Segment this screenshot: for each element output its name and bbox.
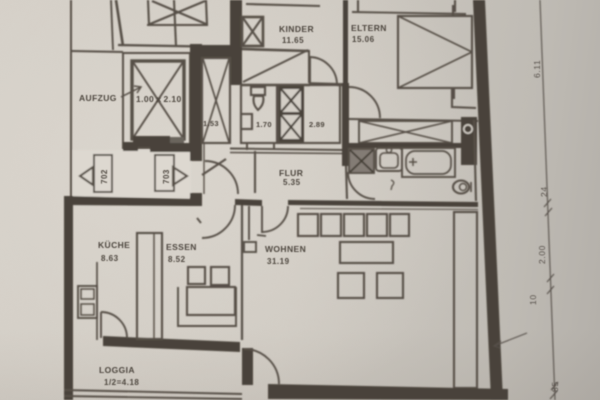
svg-text:2.89: 2.89	[309, 120, 325, 129]
svg-text:WOHNEN: WOHNEN	[265, 244, 306, 254]
svg-text:ESSEN: ESSEN	[166, 242, 197, 252]
svg-text:8.52: 8.52	[168, 255, 186, 264]
svg-text:ELTERN: ELTERN	[351, 23, 387, 33]
svg-text:703: 703	[162, 169, 171, 184]
svg-text:5.35: 5.35	[283, 178, 301, 187]
svg-text:702: 702	[100, 169, 109, 184]
svg-text:2.00: 2.00	[537, 245, 547, 264]
svg-text:FLUR: FLUR	[279, 168, 303, 178]
svg-text:24: 24	[539, 186, 549, 197]
svg-text:11.65: 11.65	[282, 36, 304, 45]
svg-text:15.06: 15.06	[352, 35, 375, 44]
svg-text:8.63: 8.63	[101, 254, 119, 263]
svg-text:1.00 x 2.10: 1.00 x 2.10	[136, 94, 182, 104]
svg-text:1.70: 1.70	[256, 120, 272, 129]
svg-text:KÜCHE: KÜCHE	[98, 240, 130, 250]
svg-text:KINDER: KINDER	[279, 24, 314, 34]
svg-text:1.53: 1.53	[203, 119, 219, 128]
svg-text:85: 85	[550, 381, 560, 392]
svg-text:31.19: 31.19	[267, 257, 290, 266]
svg-text:6.11: 6.11	[532, 60, 542, 78]
svg-text:1/2=4.18: 1/2=4.18	[104, 378, 139, 387]
svg-text:10: 10	[528, 294, 538, 305]
svg-text:LOGGIA: LOGGIA	[99, 365, 135, 375]
svg-text:AUFZUG: AUFZUG	[79, 93, 117, 103]
